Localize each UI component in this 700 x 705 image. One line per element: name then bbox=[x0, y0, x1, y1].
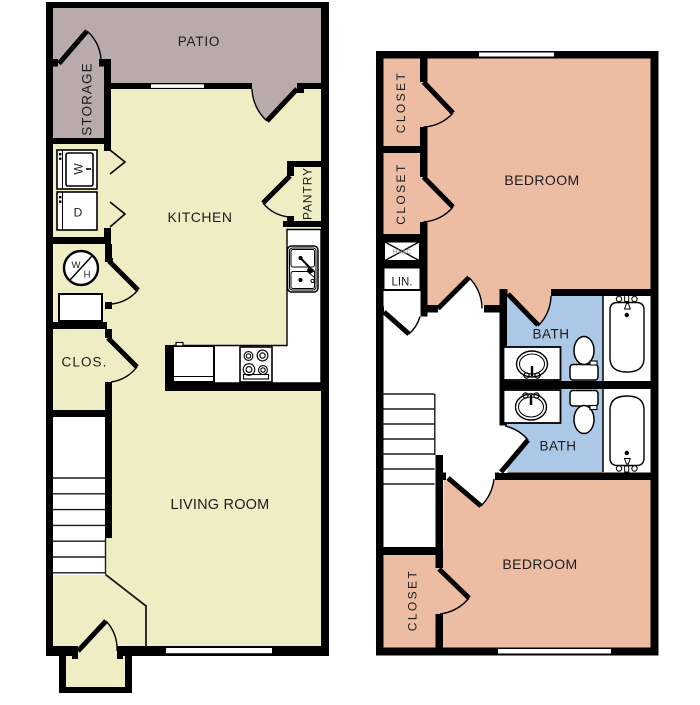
svg-text:BEDROOM: BEDROOM bbox=[504, 172, 579, 188]
svg-text:STORAGE: STORAGE bbox=[80, 62, 95, 135]
svg-text:CLOSET: CLOSET bbox=[394, 71, 408, 133]
svg-text:KITCHEN: KITCHEN bbox=[168, 209, 233, 225]
svg-text:D: D bbox=[74, 206, 83, 220]
svg-text:BATH: BATH bbox=[532, 327, 569, 342]
svg-text:W: W bbox=[72, 260, 81, 271]
svg-text:LIN.: LIN. bbox=[391, 277, 412, 289]
svg-text:CLOSET: CLOSET bbox=[394, 162, 408, 224]
svg-text:BEDROOM: BEDROOM bbox=[502, 556, 577, 572]
svg-text:W: W bbox=[72, 163, 86, 175]
svg-text:HVAC: HVAC bbox=[393, 249, 412, 256]
svg-text:PANTRY: PANTRY bbox=[301, 167, 315, 220]
svg-text:LIVING ROOM: LIVING ROOM bbox=[171, 497, 270, 513]
svg-text:BATH: BATH bbox=[539, 439, 576, 454]
svg-text:H: H bbox=[84, 270, 91, 281]
svg-text:PATIO: PATIO bbox=[178, 34, 221, 49]
svg-text:CLOS.: CLOS. bbox=[61, 355, 107, 370]
svg-text:CLOSET: CLOSET bbox=[406, 569, 420, 631]
